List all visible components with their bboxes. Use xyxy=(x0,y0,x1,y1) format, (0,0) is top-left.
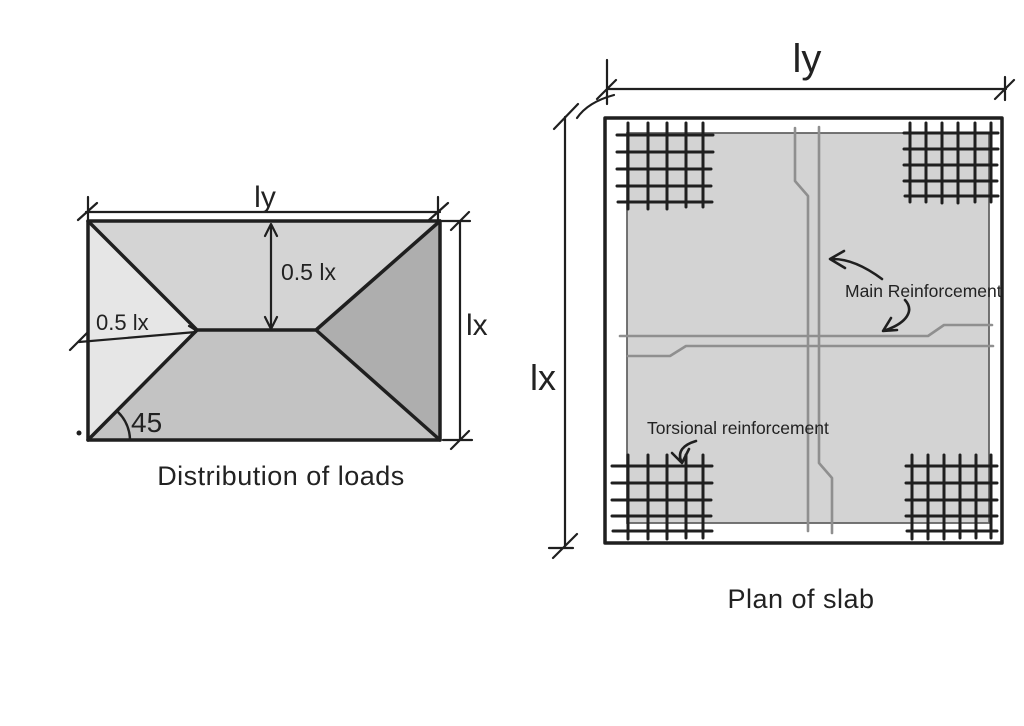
dim-ly-left-label: ly xyxy=(254,181,276,214)
dim-ly-left: ly xyxy=(78,181,448,221)
slab-plan-figure: ly lx Main Reinforcement Torsional reinf… xyxy=(530,37,1014,614)
load-distribution-figure: ly lx 0.5 lx 0.5 lx 45 Distribution of l… xyxy=(70,181,488,491)
dim-ly-slab-label: ly xyxy=(793,37,822,81)
dim-lx-left-label: lx xyxy=(466,309,488,342)
half-lx-vertical-label: 0.5 lx xyxy=(281,259,336,285)
angle-label: 45 xyxy=(131,407,162,438)
diagram-canvas: ly lx 0.5 lx 0.5 lx 45 Distribution of l… xyxy=(0,0,1024,726)
dim-ly-slab: ly xyxy=(577,37,1014,118)
dim-lx-slab-line xyxy=(549,104,578,558)
corner-dot xyxy=(77,431,82,436)
dim-lx-slab: lx xyxy=(530,104,578,558)
dim-lx-slab-label: lx xyxy=(530,357,556,398)
torsional-reinforcement-label: Torsional reinforcement xyxy=(647,418,829,438)
main-reinforcement-label: Main Reinforcement xyxy=(845,281,1002,301)
dim-lx-left-figure: lx xyxy=(442,212,488,449)
half-lx-horizontal-label: 0.5 lx xyxy=(96,310,149,335)
dim-connector-curve xyxy=(577,95,614,118)
load-figure-caption: Distribution of loads xyxy=(157,461,405,491)
slab-figure-caption: Plan of slab xyxy=(727,584,874,614)
